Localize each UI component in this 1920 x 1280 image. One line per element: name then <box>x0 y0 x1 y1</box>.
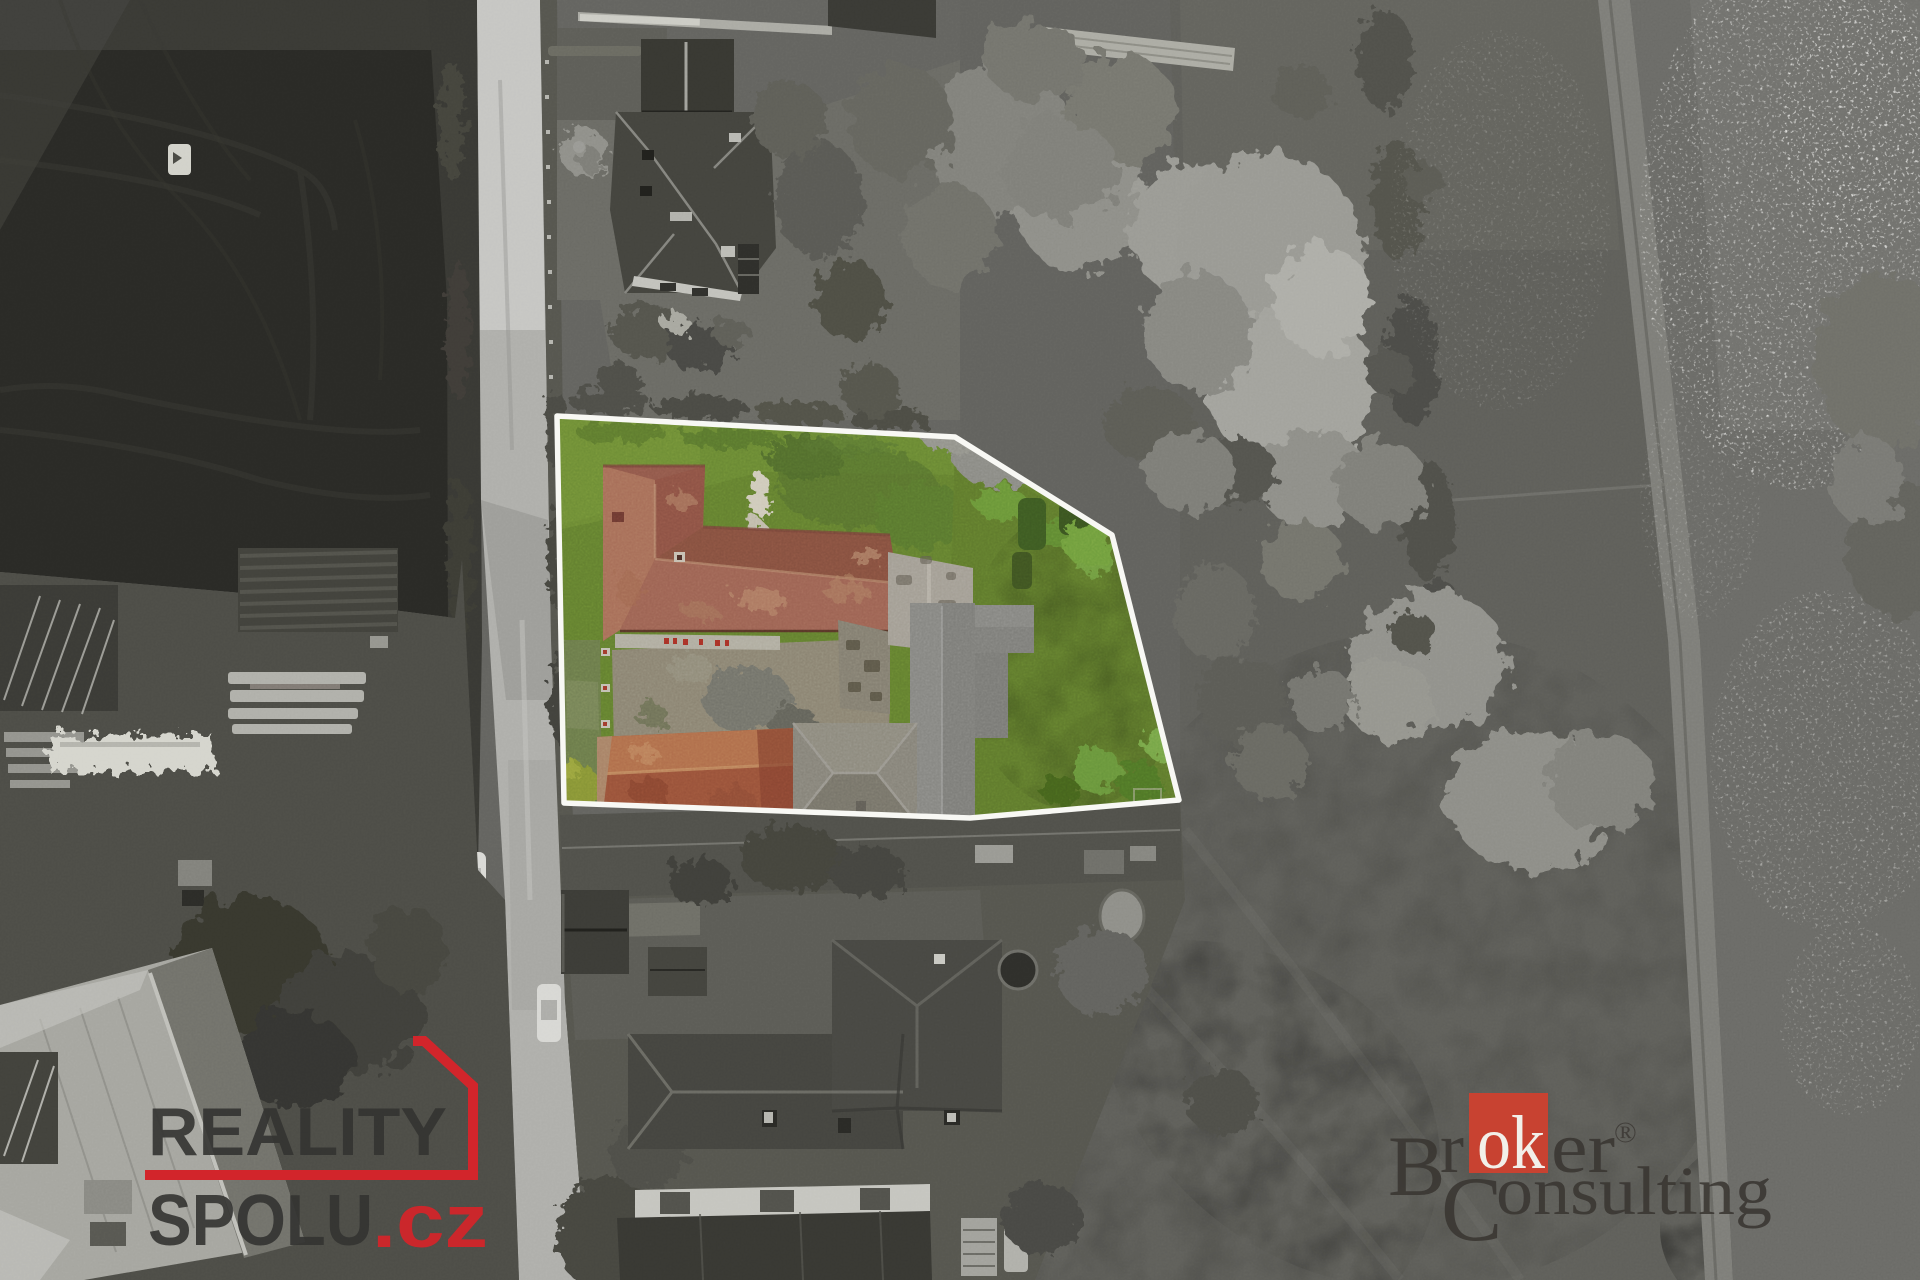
svg-text:SPOLU: SPOLU <box>148 1181 373 1261</box>
svg-text:®: ® <box>1614 1116 1637 1149</box>
svg-text:REALITY: REALITY <box>148 1094 447 1170</box>
svg-text:onsulting: onsulting <box>1496 1153 1772 1229</box>
svg-text:.cz: .cz <box>372 1179 488 1264</box>
svg-text:B: B <box>1388 1118 1445 1214</box>
svg-text:C: C <box>1441 1158 1502 1260</box>
